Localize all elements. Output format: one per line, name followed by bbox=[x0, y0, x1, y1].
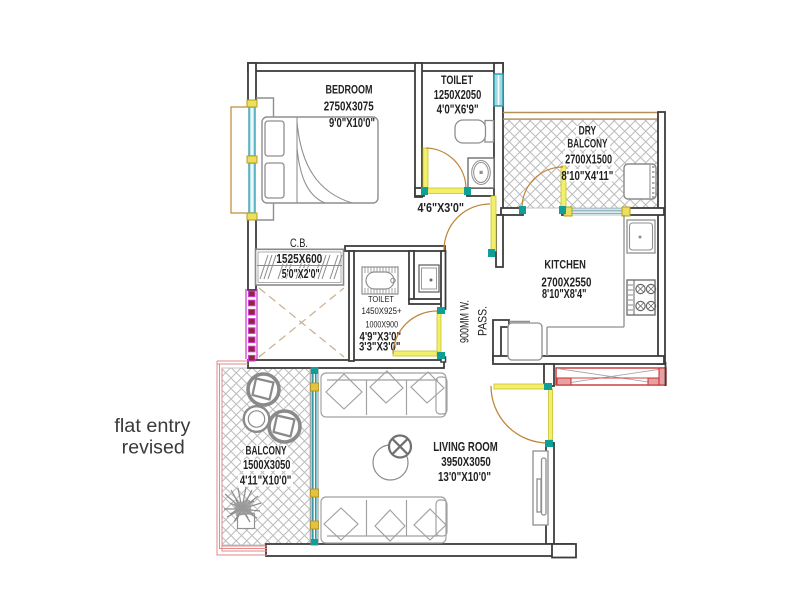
svg-text:TOILET: TOILET bbox=[368, 295, 394, 304]
svg-text:PASS.: PASS. bbox=[478, 306, 490, 336]
svg-text:4'6"X3'0": 4'6"X3'0" bbox=[417, 201, 464, 215]
svg-text:8'10"X8'4": 8'10"X8'4" bbox=[542, 286, 587, 301]
svg-text:BALCONY: BALCONY bbox=[567, 139, 607, 151]
svg-text:LIVING ROOM: LIVING ROOM bbox=[433, 440, 498, 454]
svg-text:4'11"X10'0": 4'11"X10'0" bbox=[240, 474, 292, 488]
svg-text:TOILET: TOILET bbox=[441, 75, 473, 87]
svg-text:1000X900: 1000X900 bbox=[366, 320, 399, 330]
svg-text:13'0"X10'0": 13'0"X10'0" bbox=[438, 469, 491, 484]
svg-text:C.B.: C.B. bbox=[290, 238, 308, 250]
svg-text:revised: revised bbox=[122, 438, 185, 459]
svg-text:3950X3050: 3950X3050 bbox=[441, 454, 491, 469]
svg-text:1525X600: 1525X600 bbox=[276, 252, 322, 266]
svg-text:900MM W.: 900MM W. bbox=[460, 300, 472, 343]
svg-text:1250X2050: 1250X2050 bbox=[434, 87, 482, 102]
svg-text:BALCONY: BALCONY bbox=[246, 446, 287, 458]
svg-text:9'0"X10'0": 9'0"X10'0" bbox=[329, 115, 375, 130]
svg-text:2700X1500: 2700X1500 bbox=[565, 152, 612, 167]
svg-text:1450X925+: 1450X925+ bbox=[362, 306, 402, 316]
svg-text:KITCHEN: KITCHEN bbox=[544, 260, 586, 272]
svg-text:5'0"X2'0": 5'0"X2'0" bbox=[282, 266, 320, 281]
svg-text:BEDROOM: BEDROOM bbox=[326, 85, 373, 97]
svg-text:8'10"X4'11": 8'10"X4'11" bbox=[561, 168, 613, 183]
svg-text:flat entry: flat entry bbox=[114, 416, 191, 437]
svg-text:1500X3050: 1500X3050 bbox=[243, 458, 291, 472]
svg-text:DRY: DRY bbox=[579, 126, 597, 138]
svg-text:4'0"X6'9": 4'0"X6'9" bbox=[437, 102, 479, 117]
svg-text:2750X3075: 2750X3075 bbox=[324, 99, 374, 114]
